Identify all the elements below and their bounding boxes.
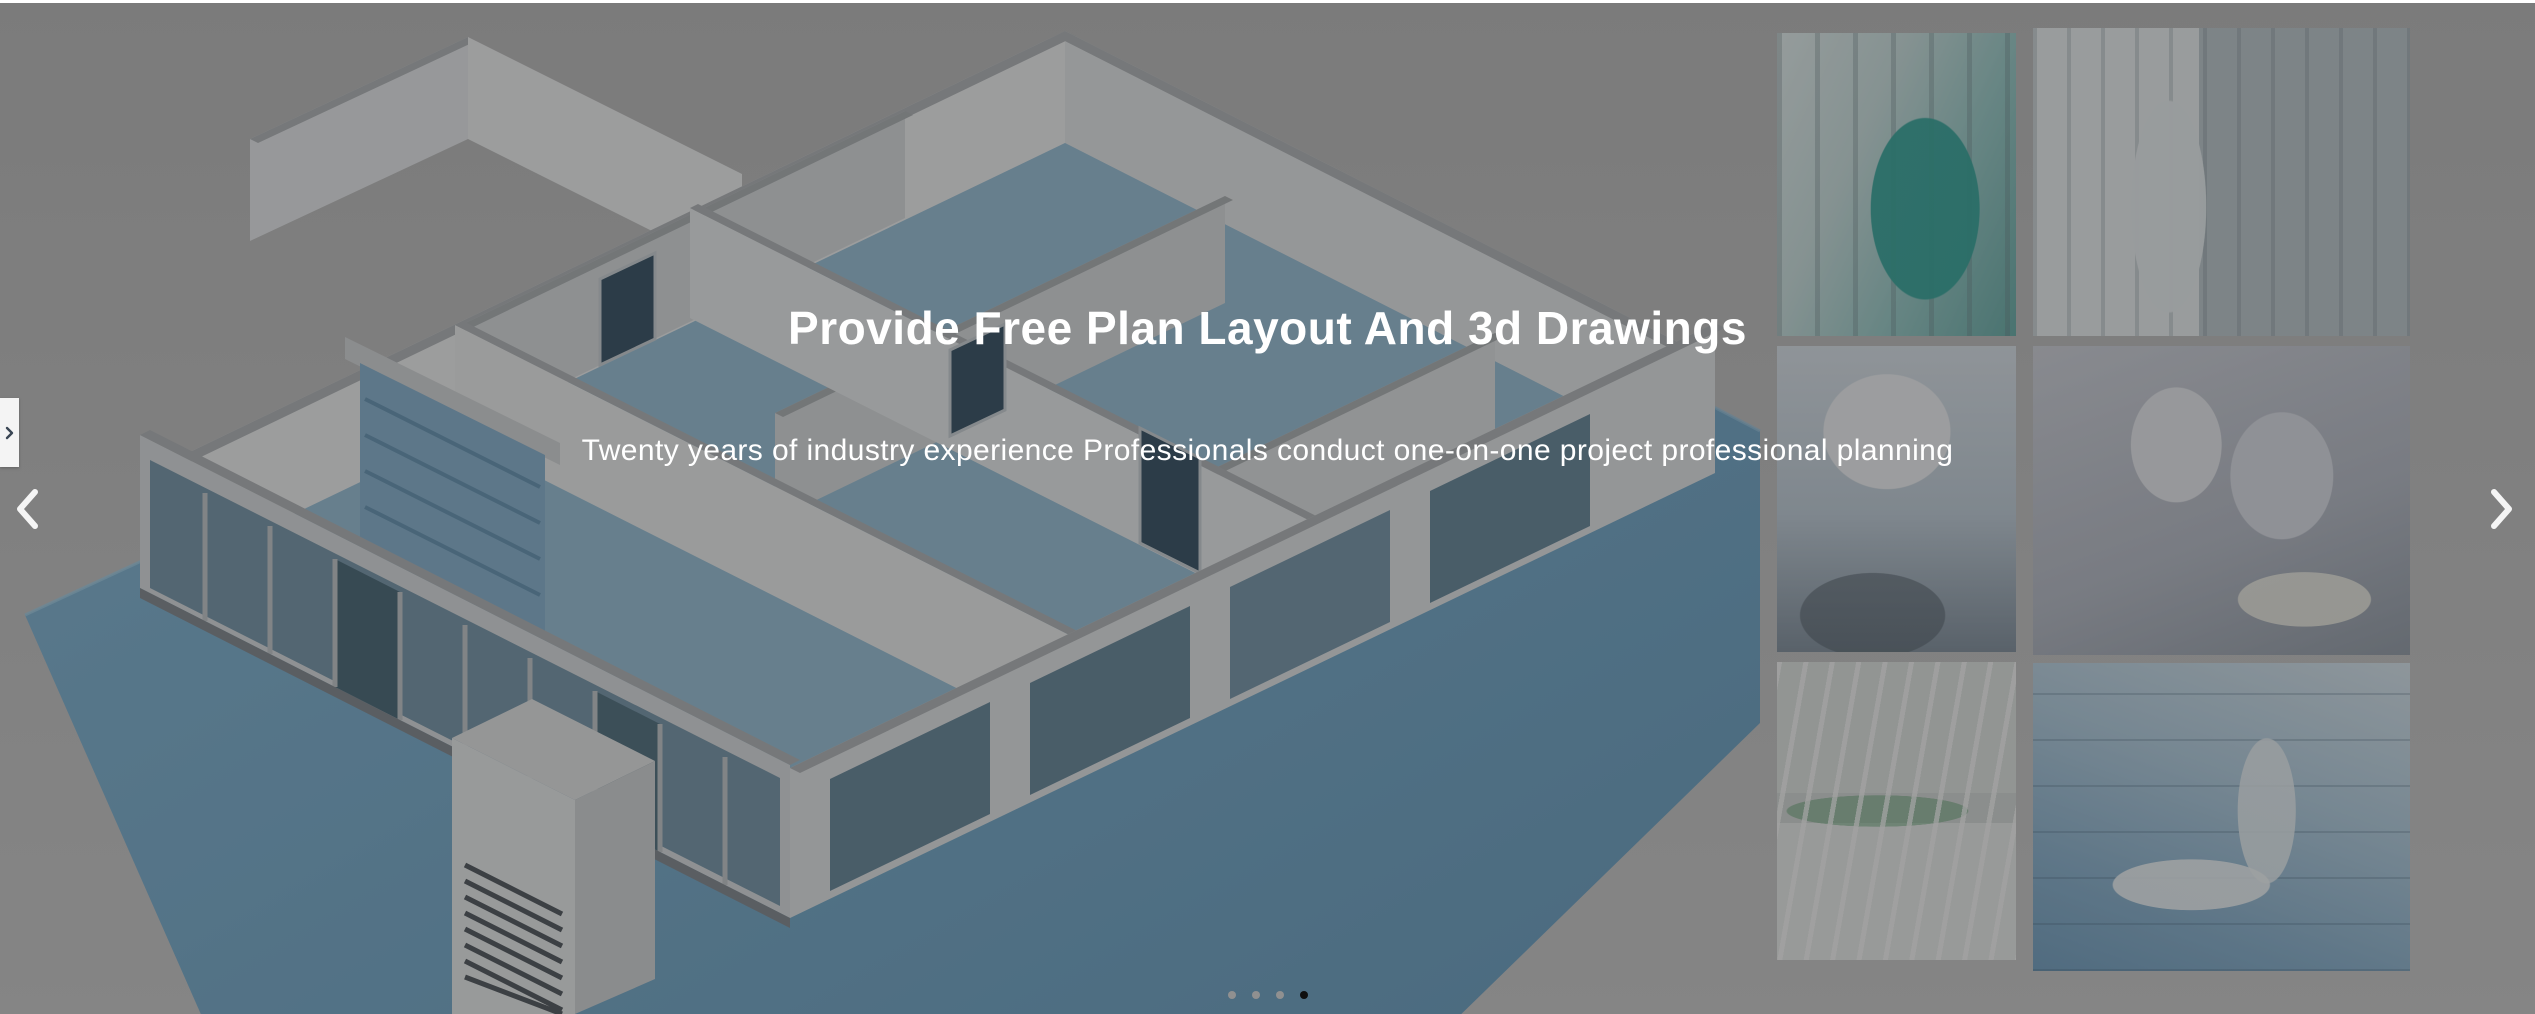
side-panel-tab[interactable] <box>0 398 19 467</box>
carousel-next-button[interactable] <box>2483 481 2521 537</box>
page: Provide Free Plan Layout And 3d Drawings… <box>0 0 2535 1014</box>
chevron-right-icon <box>5 426 14 440</box>
carousel-dots <box>1228 991 1308 999</box>
hero-carousel: Provide Free Plan Layout And 3d Drawings… <box>0 3 2535 1014</box>
carousel-dot[interactable] <box>1276 991 1284 999</box>
carousel-dot[interactable] <box>1252 991 1260 999</box>
carousel-dot[interactable] <box>1300 991 1308 999</box>
hero-subtitle: Twenty years of industry experience Prof… <box>0 433 2535 469</box>
hero-title: Provide Free Plan Layout And 3d Drawings <box>0 303 2535 354</box>
chevron-right-icon <box>2489 487 2515 531</box>
hero-dark-overlay <box>0 3 2535 1014</box>
carousel-dot[interactable] <box>1228 991 1236 999</box>
chevron-left-icon <box>14 487 40 531</box>
carousel-prev-button[interactable] <box>8 481 46 537</box>
